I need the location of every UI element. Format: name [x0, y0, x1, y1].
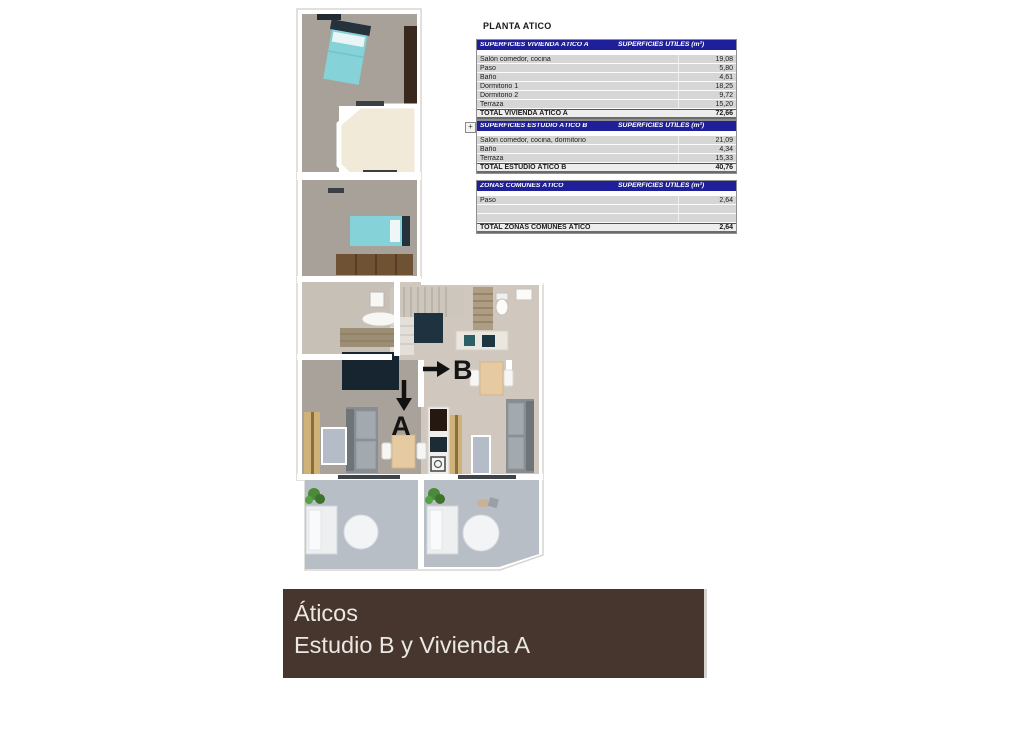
lounger-icon — [306, 506, 337, 554]
terrace-table-icon — [463, 515, 499, 551]
row-label: Baño — [477, 74, 678, 81]
rug-a-icon — [322, 428, 346, 464]
terrace-table-icon — [344, 515, 378, 549]
sofa-a-icon — [346, 407, 378, 473]
row-label: TOTAL ZONAS COMUNES ÁTICO — [477, 224, 678, 231]
row-label: Terraza — [477, 155, 678, 162]
table-header-right: SUPERFICIES UTILES (m²) — [618, 42, 736, 49]
table-row — [477, 214, 736, 223]
furniture-navy — [414, 313, 443, 343]
table-row: Baño 4,61 — [477, 73, 736, 82]
table-header-left: ZONAS COMUNES ÁTICO — [477, 183, 618, 190]
label-a: A — [391, 411, 411, 441]
table-header: ZONAS COMUNES ÁTICO SUPERFICIES UTILES (… — [477, 181, 736, 192]
title-banner: Áticos Estudio B y Vivienda A — [283, 589, 707, 678]
table-header-left: SUPERFICIES ESTUDIO ÁTICO B — [477, 123, 618, 130]
wardrobe-icon — [404, 26, 417, 104]
kitchen-a-icon — [428, 407, 462, 485]
stairs-upper-icon — [473, 287, 493, 330]
kitchen-b-icon — [456, 331, 508, 350]
table-row: Dormitorio 1 18,25 — [477, 82, 736, 91]
outline-expand-icon[interactable]: + — [465, 122, 476, 133]
row-value: 21,09 — [678, 136, 736, 144]
rug-b-icon — [472, 436, 490, 474]
wardrobe-icon — [336, 254, 413, 275]
row-label: Dormitorio 1 — [477, 83, 678, 90]
table-header: SUPERFICIES ESTUDIO ÁTICO B SUPERFICIES … — [477, 121, 736, 132]
sofa-b-icon — [506, 399, 534, 473]
table-row: Salón comedor, cocina, dormitorio 21,09 — [477, 136, 736, 145]
central-block — [297, 279, 543, 485]
table-row: Paso 5,80 — [477, 64, 736, 73]
table-row: Terraza 15,20 — [477, 100, 736, 109]
sideboard-a-icon — [304, 412, 320, 474]
table-row: Dormitorio 2 9,72 — [477, 91, 736, 100]
bed-icon — [350, 216, 410, 246]
row-value: 4,61 — [678, 73, 736, 81]
row-value: 4,34 — [678, 145, 736, 153]
table-row: Baño 4,34 — [477, 145, 736, 154]
table-total-row: TOTAL ESTUDIO ÁTICO B 40,76 — [477, 163, 736, 173]
row-value: 18,25 — [678, 82, 736, 90]
table-row: Salón comedor, cocina 19,08 — [477, 55, 736, 64]
table-zonas-comunes: ZONAS COMUNES ÁTICO SUPERFICIES UTILES (… — [476, 180, 737, 234]
table-header-right: SUPERFICIES UTILES (m²) — [618, 123, 736, 130]
table-row: Terraza 15,33 — [477, 154, 736, 163]
lounger-icon — [427, 506, 458, 554]
surface-tables: PLANTA ATICO SUPERFICIES VIVIENDA ÁTICO … — [476, 22, 737, 234]
row-value: 19,08 — [678, 55, 736, 63]
page-title: PLANTA ATICO — [483, 22, 737, 32]
table-total-row: TOTAL ZONAS COMUNES ÁTICO 2,64 — [477, 223, 736, 233]
row-value: 15,33 — [678, 154, 736, 162]
row-label: Paso — [477, 197, 678, 204]
row-label: Salón comedor, cocina, dormitorio — [477, 137, 678, 144]
row-value: 15,20 — [678, 100, 736, 108]
row-label: Baño — [477, 146, 678, 153]
row-value: 9,72 — [678, 91, 736, 99]
table-row — [477, 205, 736, 214]
row-label: Salón comedor, cocina — [477, 56, 678, 63]
banner-line-2: Estudio B y Vivienda A — [294, 630, 704, 662]
table-header-left: SUPERFICIES VIVIENDA ÁTICO A — [477, 42, 618, 49]
row-value: 5,80 — [678, 64, 736, 72]
table-vivienda-a: SUPERFICIES VIVIENDA ÁTICO A SUPERFICIES… — [476, 39, 737, 120]
row-value: 2,64 — [678, 196, 736, 204]
terraces-lower — [305, 480, 539, 569]
row-label: Dormitorio 2 — [477, 92, 678, 99]
row-label: Terraza — [477, 101, 678, 108]
row-value: 40,76 — [678, 164, 736, 171]
row-label: Paso — [477, 65, 678, 72]
table-estudio-b: SUPERFICIES ESTUDIO ÁTICO B SUPERFICIES … — [476, 120, 737, 174]
row-value: 2,64 — [678, 224, 736, 231]
bedroom-2 — [297, 172, 421, 283]
hall-cabinet — [340, 328, 396, 347]
table-row: Paso 2,64 — [477, 196, 736, 205]
table-header: SUPERFICIES VIVIENDA ÁTICO A SUPERFICIES… — [477, 40, 736, 51]
terrace-a — [339, 101, 417, 175]
label-b: B — [453, 355, 473, 385]
row-value — [678, 214, 736, 222]
table-header-right: SUPERFICIES UTILES (m²) — [618, 183, 736, 190]
row-value: 72,66 — [678, 110, 736, 117]
row-label: TOTAL ESTUDIO ÁTICO B — [477, 164, 678, 171]
banner-line-1: Áticos — [294, 598, 704, 630]
row-label: TOTAL VIVIENDA ÁTICO A — [477, 110, 678, 117]
page: B A PLANTA ATICO SUPERFICIES VIVIENDA ÁT… — [0, 0, 1024, 732]
table-total-row: TOTAL VIVIENDA ÁTICO A 72,66 — [477, 109, 736, 119]
row-value — [678, 205, 736, 213]
